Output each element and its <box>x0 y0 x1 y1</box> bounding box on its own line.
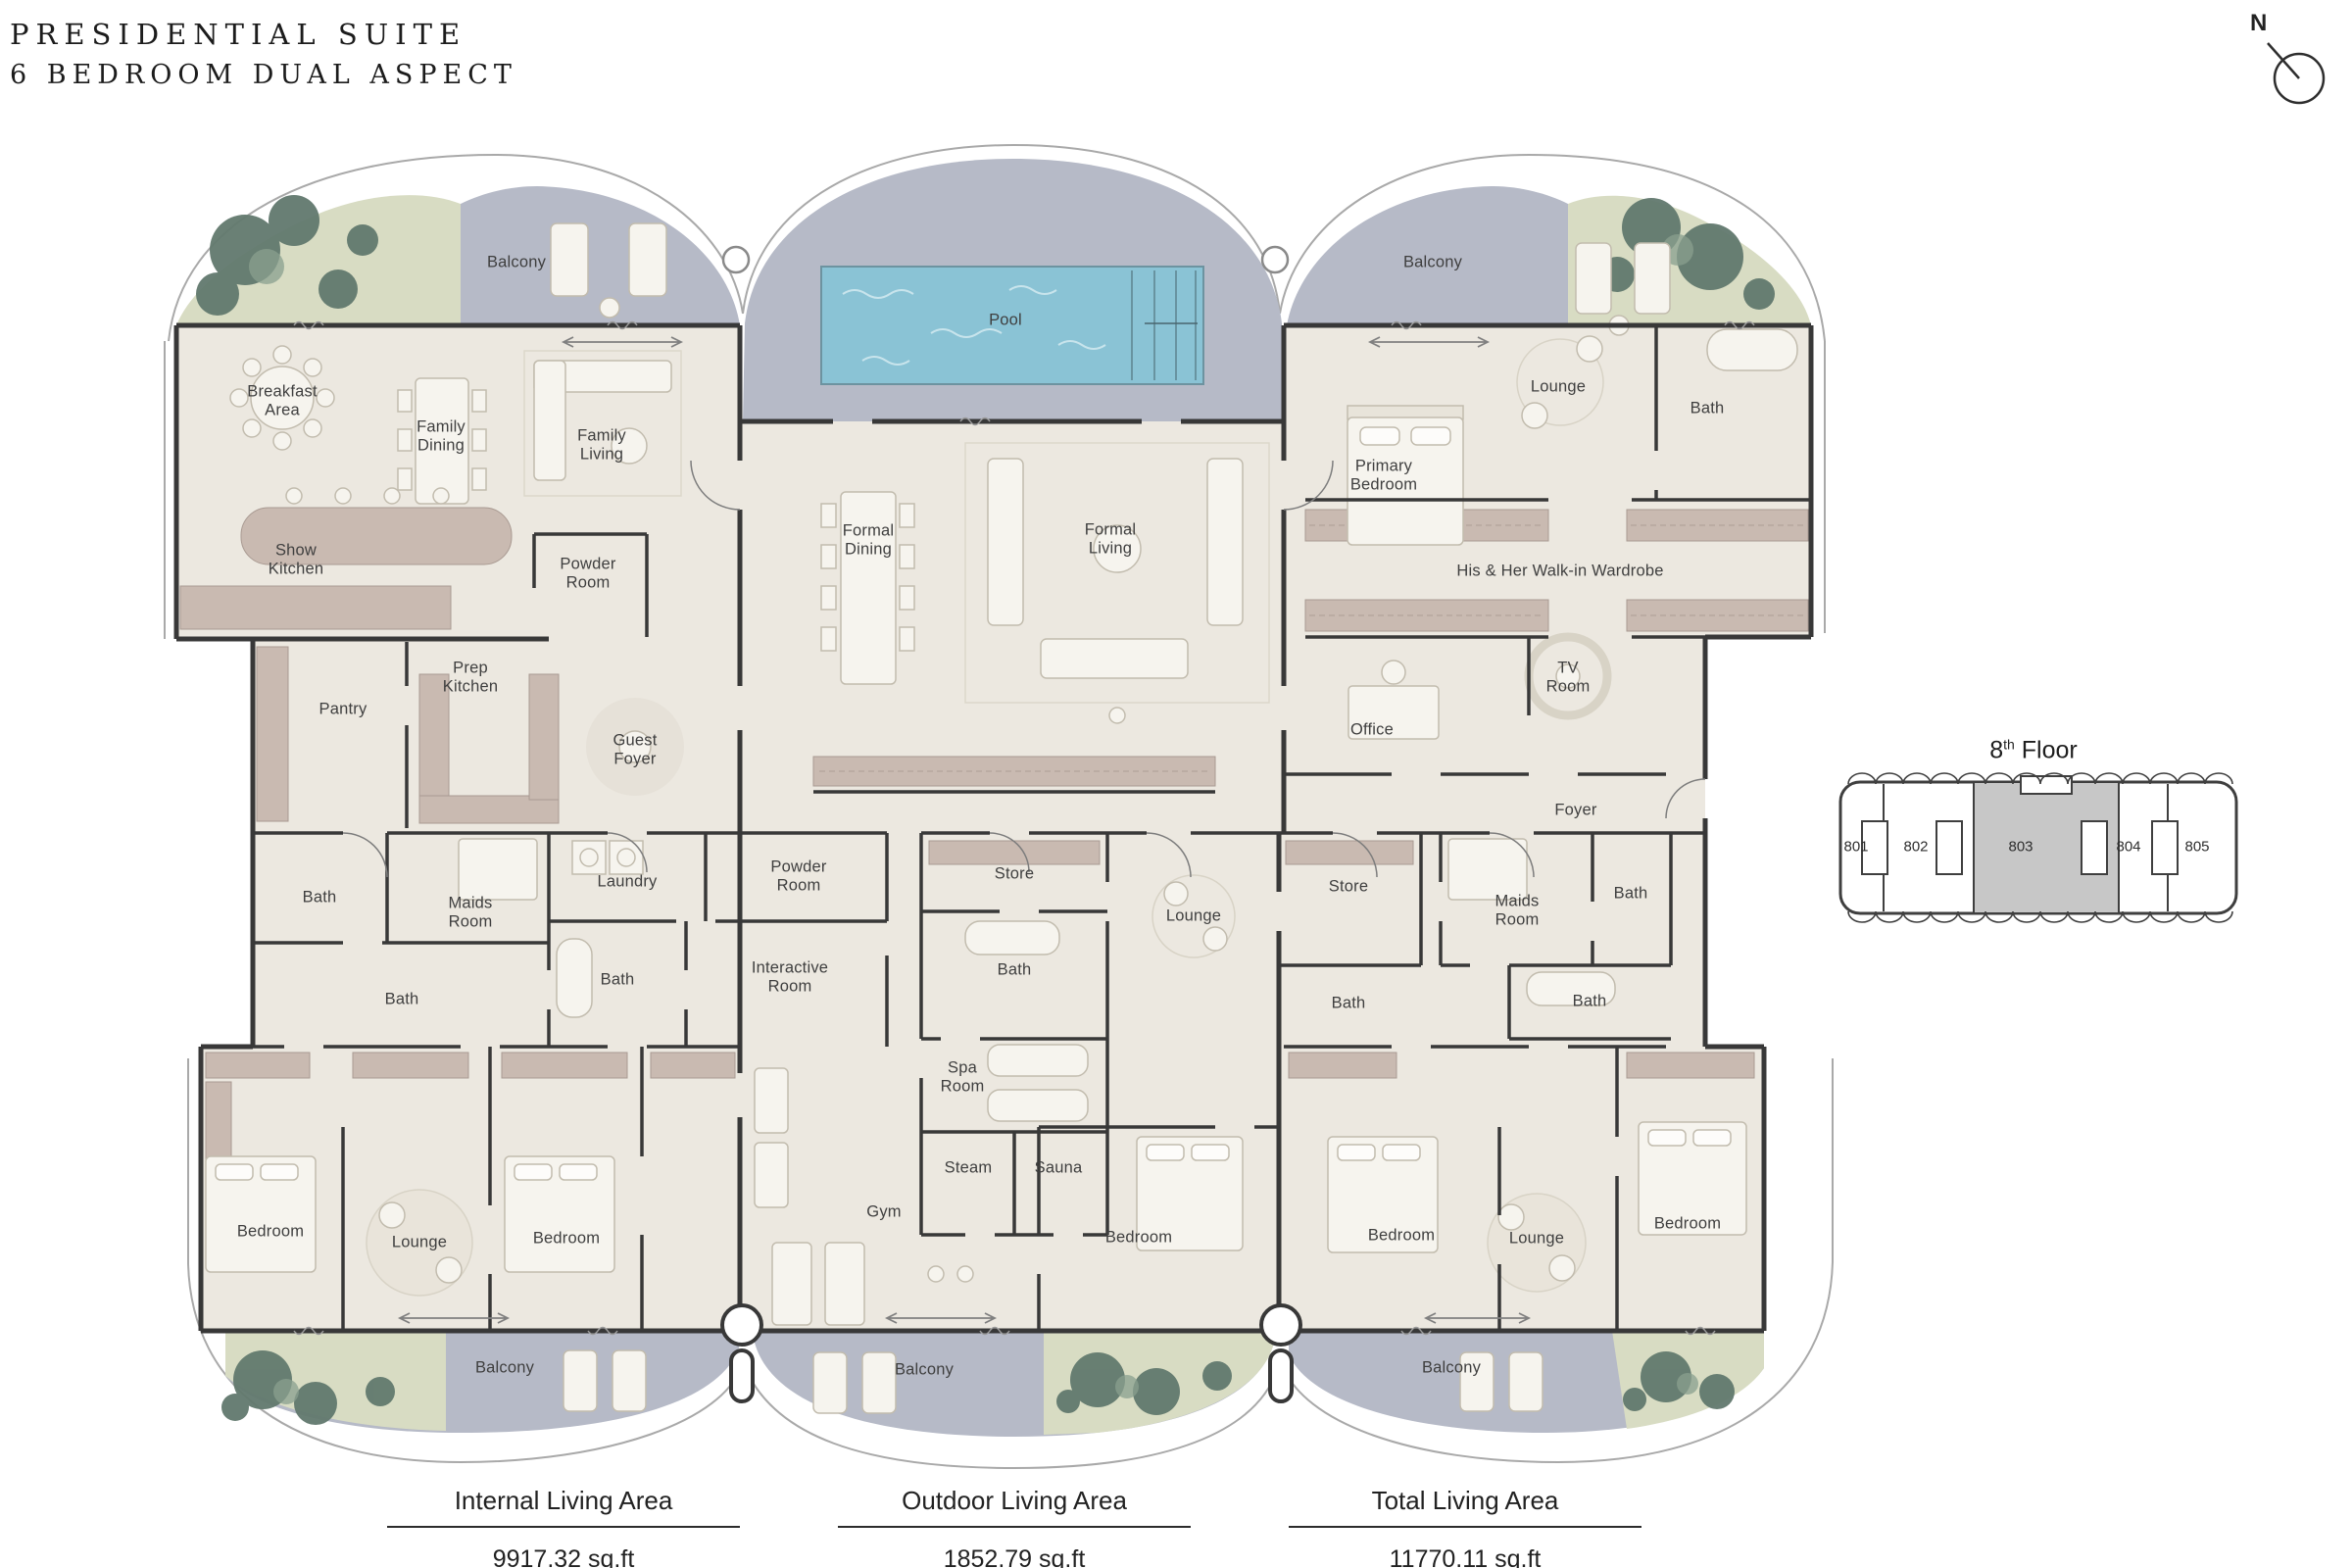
room-label-tv-room: TV Room <box>1546 660 1591 698</box>
stat-value: 1852.79 sq.ft <box>838 1545 1191 1568</box>
room-label-balcony: Balcony <box>487 253 546 271</box>
stat-header: Internal Living Area <box>387 1486 740 1528</box>
room-label-laundry: Laundry <box>597 872 657 891</box>
room-label-breakfast-area: Breakfast Area <box>247 383 318 421</box>
room-label-powder-room: Powder Room <box>560 556 615 594</box>
stat-header: Outdoor Living Area <box>838 1486 1191 1528</box>
inset-floor-suffix: th <box>2003 736 2015 752</box>
room-label-gym: Gym <box>866 1202 901 1221</box>
compass: N <box>2232 8 2340 116</box>
title-line-1: PRESIDENTIAL SUITE <box>10 18 517 51</box>
room-label-balcony: Balcony <box>895 1360 954 1379</box>
room-label-bath: Bath <box>998 960 1032 979</box>
room-label-pantry: Pantry <box>319 700 367 718</box>
stat-outdoor-living-area: Outdoor Living Area 1852.79 sq.ft <box>838 1486 1191 1568</box>
room-label-bedroom: Bedroom <box>1368 1226 1435 1245</box>
room-label-store: Store <box>995 864 1034 883</box>
room-label-his-her-walk-in-wardrobe: His & Her Walk-in Wardrobe <box>1456 562 1663 580</box>
room-label-balcony: Balcony <box>1422 1358 1481 1377</box>
room-label-bath: Bath <box>1573 992 1607 1010</box>
room-label-interactive-room: Interactive Room <box>752 959 828 998</box>
room-label-foyer: Foyer <box>1554 801 1596 819</box>
room-label-spa-room: Spa Room <box>941 1059 985 1098</box>
room-label-pool: Pool <box>989 311 1022 329</box>
stat-value: 9917.32 sq.ft <box>387 1545 740 1568</box>
room-label-family-living: Family Living <box>577 427 626 465</box>
room-label-primary-bedroom: Primary Bedroom <box>1350 458 1417 496</box>
room-label-powder-room: Powder Room <box>770 858 826 897</box>
stat-total-living-area: Total Living Area 11770.11 sq.ft <box>1289 1486 1641 1568</box>
stat-internal-living-area: Internal Living Area 9917.32 sq.ft <box>387 1486 740 1568</box>
room-label-maids-room: Maids Room <box>448 895 492 933</box>
room-label-maids-room: Maids Room <box>1494 893 1539 931</box>
room-label-store: Store <box>1329 877 1368 896</box>
stat-value: 11770.11 sq.ft <box>1289 1545 1641 1568</box>
room-label-bath: Bath <box>303 888 337 906</box>
room-label-bath: Bath <box>385 990 419 1008</box>
room-label-balcony: Balcony <box>1403 253 1462 271</box>
room-label-bath: Bath <box>1690 399 1725 417</box>
title-line-2: 6 BEDROOM DUAL ASPECT <box>10 60 517 90</box>
room-label-sauna: Sauna <box>1035 1158 1083 1177</box>
room-label-prep-kitchen: Prep Kitchen <box>443 660 498 698</box>
floorplan-drawing <box>0 0 2352 1568</box>
compass-icon <box>2232 8 2340 116</box>
inset-unit-803: 803 <box>2008 839 2033 856</box>
room-label-lounge: Lounge <box>1509 1229 1564 1248</box>
room-label-lounge: Lounge <box>1531 377 1586 396</box>
room-label-formal-dining: Formal Dining <box>843 522 895 561</box>
inset-unit-804: 804 <box>2116 839 2140 856</box>
room-label-office: Office <box>1350 720 1394 739</box>
room-label-bath: Bath <box>1332 994 1366 1012</box>
room-label-bedroom: Bedroom <box>533 1229 600 1248</box>
inset-floor-number: 8 <box>1989 737 2003 764</box>
room-label-bath: Bath <box>601 970 635 989</box>
room-label-show-kitchen: Show Kitchen <box>269 542 323 580</box>
inset-floor-title: 8th Floor <box>1989 736 2078 764</box>
room-label-lounge: Lounge <box>1166 906 1221 925</box>
room-label-guest-foyer: Guest Foyer <box>612 732 657 770</box>
inset-unit-805: 805 <box>2184 839 2209 856</box>
room-label-lounge: Lounge <box>392 1233 447 1251</box>
inset-unit-802: 802 <box>1903 839 1928 856</box>
room-label-formal-living: Formal Living <box>1085 521 1137 560</box>
inset-unit-801: 801 <box>1843 839 1868 856</box>
room-label-bedroom: Bedroom <box>1654 1214 1721 1233</box>
room-label-balcony: Balcony <box>475 1358 534 1377</box>
inset-floor-word: Floor <box>2015 737 2078 764</box>
room-label-bath: Bath <box>1614 884 1648 903</box>
page-title: PRESIDENTIAL SUITE 6 BEDROOM DUAL ASPECT <box>10 18 517 90</box>
room-label-bedroom: Bedroom <box>237 1222 304 1241</box>
floorplan-page: PRESIDENTIAL SUITE 6 BEDROOM DUAL ASPECT… <box>0 0 2352 1568</box>
room-label-bedroom: Bedroom <box>1105 1228 1172 1247</box>
room-label-family-dining: Family Dining <box>416 418 465 457</box>
room-label-steam: Steam <box>945 1158 993 1177</box>
floor-key-inset <box>1840 773 2236 922</box>
stat-header: Total Living Area <box>1289 1486 1641 1528</box>
compass-north-label: N <box>2250 10 2267 37</box>
